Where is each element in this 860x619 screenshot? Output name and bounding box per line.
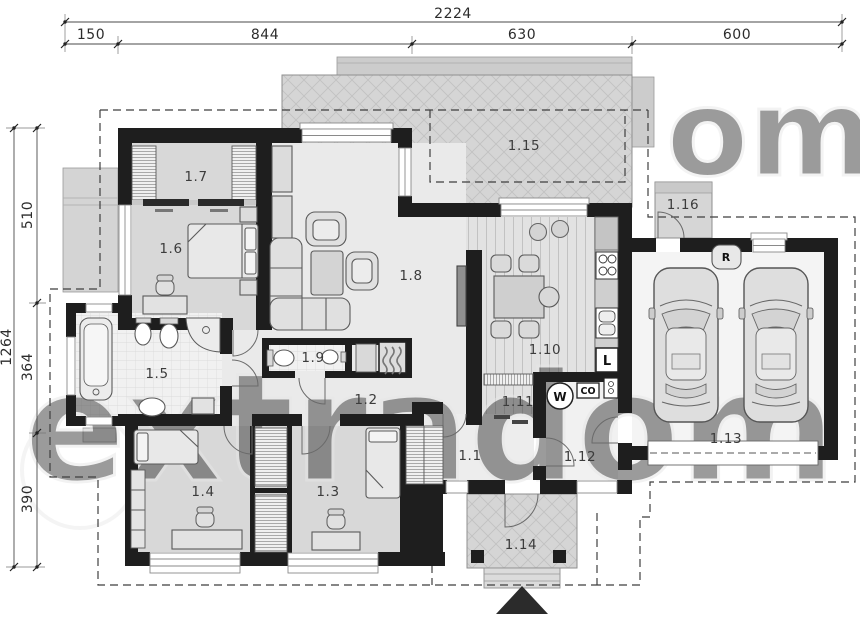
desk-16-icon bbox=[143, 296, 187, 314]
room-label-1-11: 1.11 bbox=[502, 394, 534, 410]
closet-hall-icon bbox=[424, 426, 443, 484]
window-bath-top bbox=[86, 304, 112, 312]
wall-utility-left-b bbox=[533, 466, 546, 480]
wall-bay-top-a bbox=[66, 303, 86, 313]
wall-hall-top bbox=[412, 402, 443, 414]
wall-bath-bottom bbox=[118, 414, 222, 426]
wall-hall-bottom-b bbox=[467, 480, 505, 494]
washing-machine-label: W bbox=[553, 390, 566, 404]
wall-corridor-bed-b bbox=[340, 414, 424, 426]
pendant-lamp-b-icon bbox=[552, 221, 569, 238]
shelf-18-a bbox=[272, 146, 292, 192]
dim-left-seg-390: 390 bbox=[20, 485, 36, 513]
wall-bed13-right bbox=[400, 426, 406, 566]
pillow-13 bbox=[369, 431, 397, 442]
room-label-1-4: 1.4 bbox=[191, 484, 214, 500]
toilet-tank-19 bbox=[267, 350, 273, 366]
pantry-door-track-b bbox=[512, 420, 528, 424]
wall-wc-bottom-b bbox=[325, 371, 352, 378]
window-hall bbox=[446, 481, 468, 493]
washbasin-15-icon bbox=[139, 398, 165, 416]
dining-table-icon bbox=[494, 276, 544, 318]
shelf-18-b bbox=[272, 196, 292, 238]
side-patio bbox=[63, 168, 118, 292]
wall-top-living bbox=[391, 128, 412, 143]
armchair-top-seat bbox=[313, 220, 339, 240]
utility-sink-icon bbox=[604, 378, 618, 398]
armchair-right-seat bbox=[352, 259, 372, 283]
watermark-fragment: om bbox=[666, 65, 860, 204]
wall-wc-bottom-a bbox=[262, 371, 295, 378]
dim-left-seg-510: 510 bbox=[20, 201, 36, 229]
floor-plan-drawing: extradom om bbox=[0, 0, 860, 619]
north-arrow-icon bbox=[496, 586, 548, 614]
room-label-1-15: 1.15 bbox=[508, 138, 540, 154]
fridge-label: L bbox=[603, 354, 611, 369]
wall-dining-top-b bbox=[587, 203, 632, 217]
wall-garage-top-a bbox=[632, 238, 656, 252]
room-label-1-14: 1.14 bbox=[505, 537, 537, 553]
dining-chair-b bbox=[519, 255, 539, 272]
desk-14-icon bbox=[172, 530, 242, 549]
sliding-door-track-b bbox=[210, 209, 228, 212]
wall-left-upper-b bbox=[118, 295, 132, 321]
pendant-lamp-a-icon bbox=[530, 224, 547, 241]
room-label-1-6: 1.6 bbox=[159, 241, 182, 257]
window-bedroom13 bbox=[288, 553, 378, 573]
tv-icon bbox=[457, 266, 466, 326]
pantry-door-track-a bbox=[494, 415, 510, 419]
dim-top-seg-150: 150 bbox=[77, 27, 105, 43]
desk-13-icon bbox=[312, 532, 360, 550]
dim-left-seg-364: 364 bbox=[20, 353, 36, 381]
nightstand-16-b bbox=[240, 280, 257, 295]
hall-closet-icon bbox=[356, 344, 376, 372]
wall-partition-tv bbox=[466, 250, 482, 425]
wall-bed-bottom-b bbox=[240, 552, 288, 566]
window-utility bbox=[577, 481, 617, 493]
boiler-label: CO bbox=[580, 386, 595, 397]
wardrobe-17-right-icon bbox=[232, 146, 256, 204]
dim-top-seg-630: 630 bbox=[508, 27, 536, 43]
wall-utility-bottom-a bbox=[540, 480, 577, 494]
room-label-1-9: 1.9 bbox=[301, 350, 324, 366]
porch-post-right bbox=[553, 550, 566, 563]
shelf-14-icon bbox=[131, 470, 145, 548]
terrace-edge-strip-right bbox=[632, 77, 654, 147]
car-left-icon bbox=[649, 268, 723, 422]
closet-13b-icon bbox=[406, 426, 424, 484]
room-label-1-5: 1.5 bbox=[145, 366, 168, 382]
pillow-16-a bbox=[245, 228, 256, 250]
room-label-1-2: 1.2 bbox=[354, 392, 377, 408]
wall-kitchen-garage-a bbox=[618, 217, 632, 413]
wall-living-right-b bbox=[398, 196, 412, 217]
terrace-edge-strip-top bbox=[337, 57, 632, 75]
wall-left-upper-a bbox=[118, 128, 132, 205]
porch-post-left bbox=[471, 550, 484, 563]
wall-living-right-a bbox=[398, 143, 412, 148]
wall-wc-top bbox=[262, 338, 352, 345]
nightstand-16-a bbox=[240, 207, 257, 222]
closet-14-icon bbox=[255, 428, 287, 486]
wall-kitchen-garage-b bbox=[618, 443, 632, 470]
room-label-1-1: 1.1 bbox=[458, 448, 481, 464]
sink-basin-b bbox=[599, 324, 615, 335]
room-label-1-12: 1.12 bbox=[564, 449, 596, 465]
sliding-door-track-a bbox=[155, 209, 173, 212]
dim-top-total: 2224 bbox=[434, 6, 472, 22]
room-label-1-3: 1.3 bbox=[316, 484, 339, 500]
chair-16-icon bbox=[156, 275, 174, 295]
window-sill-living bbox=[300, 123, 393, 129]
sliding-door-left-icon bbox=[143, 199, 189, 206]
wall-garage-bottom-b bbox=[818, 446, 838, 460]
chair-13-icon bbox=[327, 509, 345, 529]
wall-garage-bottom-a bbox=[632, 446, 648, 460]
wall-dining-top-a bbox=[412, 203, 501, 217]
wall-bay-bottom-a bbox=[66, 416, 86, 426]
room-label-1-7: 1.7 bbox=[184, 169, 207, 185]
kitchen-cabinet bbox=[595, 217, 618, 250]
pillow-14 bbox=[137, 433, 148, 461]
sofa-horizontal-icon bbox=[270, 298, 350, 330]
sink-basin-a bbox=[599, 311, 615, 322]
chair-14-icon bbox=[196, 507, 214, 527]
wall-corridor-bed-a bbox=[252, 414, 302, 426]
wall-bay-bottom-b bbox=[112, 416, 118, 426]
window-bath-left bbox=[67, 337, 75, 395]
wall-bed-bottom-c bbox=[378, 552, 445, 566]
window-bedroom14 bbox=[150, 553, 240, 573]
floor-plan-page: extradom om bbox=[0, 0, 860, 619]
closet-13-icon bbox=[255, 495, 287, 552]
room-label-1-16: 1.16 bbox=[667, 197, 699, 213]
coffee-table-icon bbox=[311, 251, 343, 295]
wall-top-left bbox=[118, 128, 302, 143]
toilet-15-icon bbox=[160, 324, 178, 348]
dining-chair-d bbox=[519, 321, 539, 338]
toilet-tank-15 bbox=[160, 318, 178, 324]
room-label-1-13: 1.13 bbox=[710, 431, 742, 447]
bidet-icon bbox=[135, 323, 151, 345]
dim-top-seg-600: 600 bbox=[723, 27, 751, 43]
bathtub-inner bbox=[84, 324, 108, 386]
window-sill-dining bbox=[499, 198, 589, 204]
pantry-shelf-icon bbox=[484, 374, 533, 385]
porch-steps bbox=[484, 568, 560, 588]
wall-utility-left-a bbox=[533, 372, 546, 438]
wall-utility-bottom-b bbox=[617, 480, 632, 494]
recuperator-label: R bbox=[722, 251, 731, 264]
dining-chair-c bbox=[491, 321, 511, 338]
wall-closet-mid bbox=[250, 488, 292, 493]
dim-top-seg-844: 844 bbox=[251, 27, 279, 43]
wardrobe-17-left-icon bbox=[132, 146, 156, 204]
dim-left-total: 1264 bbox=[0, 328, 15, 366]
sliding-door-right-icon bbox=[198, 199, 244, 206]
window-bath-bottom bbox=[86, 417, 112, 425]
washbasin-19-tap bbox=[341, 352, 346, 362]
room-label-1-10: 1.10 bbox=[529, 342, 561, 358]
car-right-icon bbox=[739, 268, 813, 422]
room-label-1-8: 1.8 bbox=[399, 268, 422, 284]
dining-chair-e bbox=[539, 287, 559, 307]
wall-garage-right bbox=[824, 238, 838, 460]
toilet-19-icon bbox=[274, 350, 294, 366]
bath-cabinet-icon bbox=[192, 398, 214, 414]
pillow-16-b bbox=[245, 252, 256, 274]
bidet-tank bbox=[136, 318, 151, 323]
dining-chair-a bbox=[491, 255, 511, 272]
wall-bath-right-a bbox=[220, 318, 232, 354]
wall-bay-top-b bbox=[112, 303, 118, 313]
